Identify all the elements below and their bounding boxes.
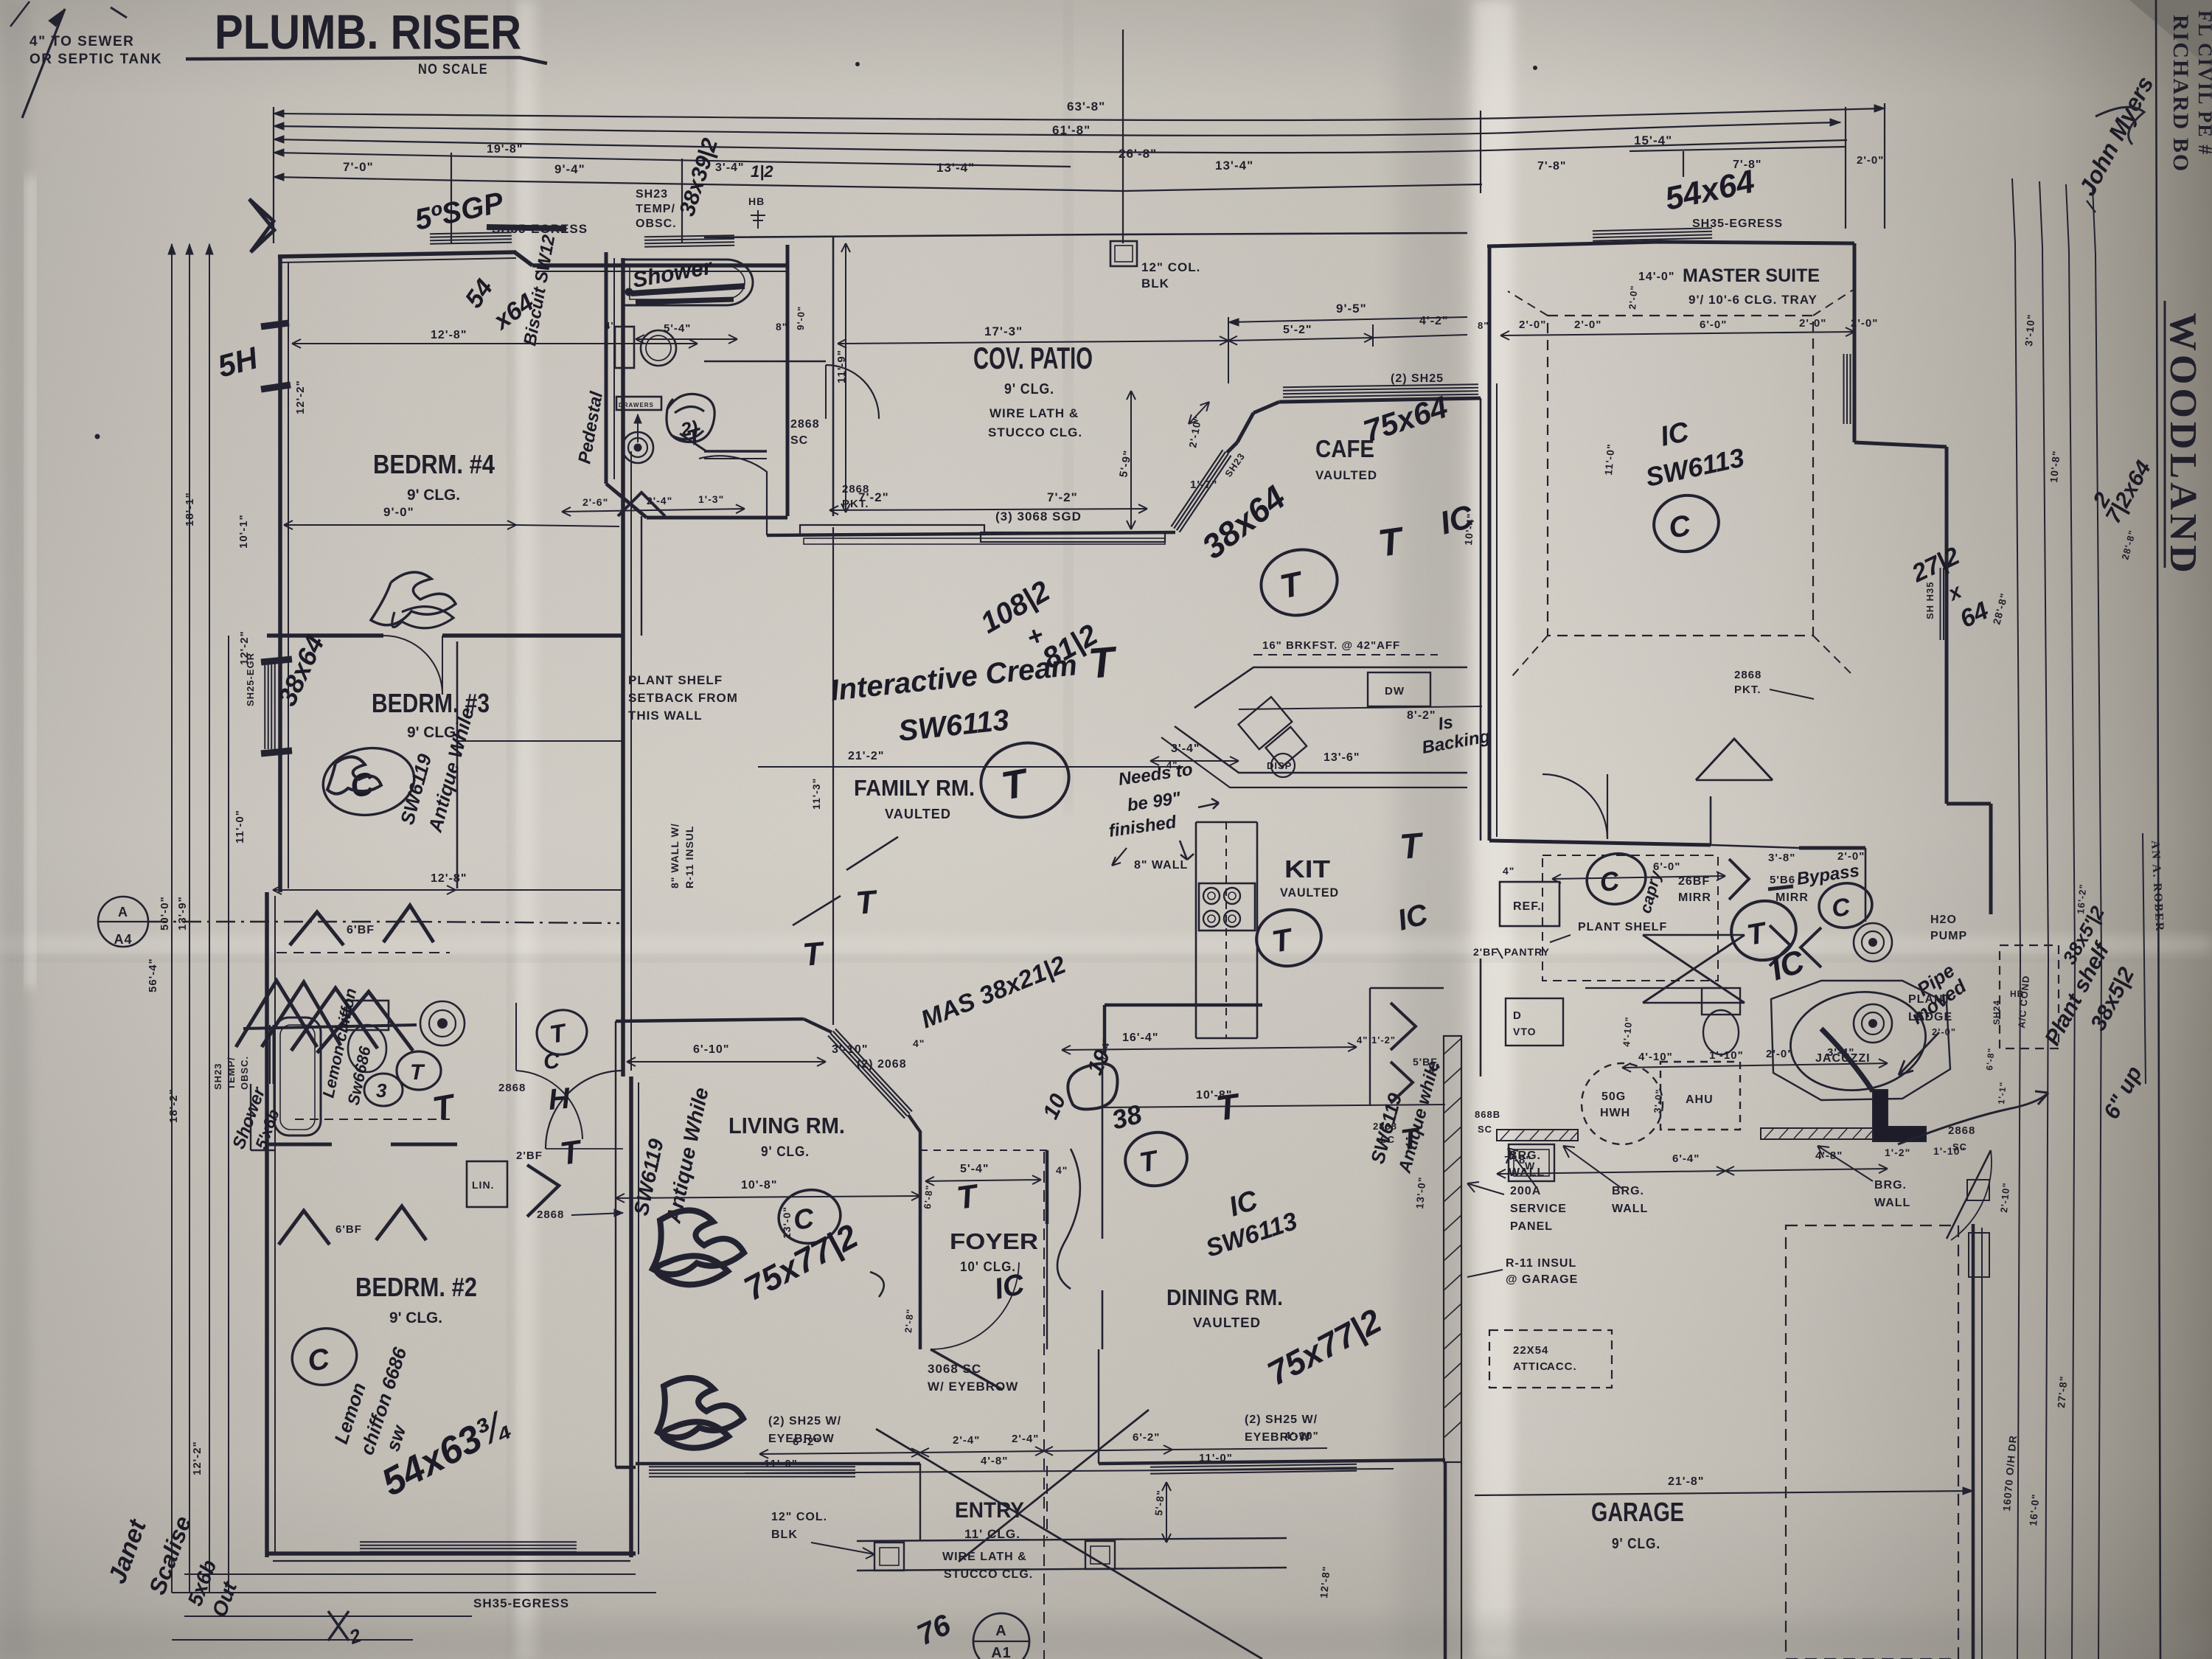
svg-text:1'-10": 1'-10" xyxy=(1933,1145,1966,1157)
svg-text:MASTER SUITE: MASTER SUITE xyxy=(1683,265,1820,286)
svg-text:FL CIVIL PE #: FL CIVIL PE # xyxy=(2194,10,2212,156)
svg-text:2868: 2868 xyxy=(537,1208,564,1221)
svg-text:50'-0": 50'-0" xyxy=(159,896,171,931)
svg-text:(2) SH25: (2) SH25 xyxy=(1391,372,1444,385)
svg-text:SC: SC xyxy=(1478,1124,1492,1135)
svg-text:OBSC.: OBSC. xyxy=(636,218,677,230)
svg-text:REF.: REF. xyxy=(1513,900,1542,913)
svg-text:VAULTED: VAULTED xyxy=(885,807,951,821)
svg-text:R-11 INSUL: R-11 INSUL xyxy=(684,826,695,888)
svg-text:2'-0": 2'-0" xyxy=(1837,850,1865,863)
svg-text:HWH: HWH xyxy=(1600,1107,1630,1119)
svg-text:6'-2": 6'-2" xyxy=(793,1436,820,1448)
svg-text:PUMP: PUMP xyxy=(1930,930,1967,942)
svg-text:1'-7": 1'-7" xyxy=(1190,479,1217,491)
svg-text:12" COL.: 12" COL. xyxy=(1141,260,1200,274)
svg-text:5'-4": 5'-4" xyxy=(664,322,691,335)
svg-text:ACC.: ACC. xyxy=(1547,1360,1577,1373)
svg-text:2'-4": 2'-4" xyxy=(1012,1433,1039,1445)
svg-text:4'-8": 4'-8" xyxy=(981,1455,1008,1467)
svg-text:PLANT SHELF: PLANT SHELF xyxy=(1578,921,1667,933)
svg-text:2868: 2868 xyxy=(1373,1121,1397,1132)
svg-text:(2) SH25 W/: (2) SH25 W/ xyxy=(768,1415,841,1427)
svg-text:OBSC.: OBSC. xyxy=(239,1056,250,1090)
svg-text:18'-1": 18'-1" xyxy=(184,492,196,526)
svg-text:TEMP/: TEMP/ xyxy=(226,1057,237,1090)
svg-text:A4: A4 xyxy=(114,932,132,947)
svg-text:A1: A1 xyxy=(991,1645,1012,1659)
svg-text:6'-0": 6'-0" xyxy=(1653,860,1680,873)
svg-text:SH24: SH24 xyxy=(1992,1000,2002,1025)
svg-text:12'-8": 12'-8" xyxy=(431,872,467,885)
svg-text:D: D xyxy=(1513,1009,1522,1022)
svg-text:AHU: AHU xyxy=(1686,1093,1714,1106)
svg-text:3'-4": 3'-4" xyxy=(715,161,745,174)
svg-text:THIS WALL: THIS WALL xyxy=(628,709,703,723)
svg-text:5'B6: 5'B6 xyxy=(1770,874,1795,886)
svg-text:19'-8": 19'-8" xyxy=(487,143,523,156)
svg-text:17'-3": 17'-3" xyxy=(984,324,1023,338)
svg-text:COV. PATIO: COV. PATIO xyxy=(973,341,1093,375)
svg-text:H2O: H2O xyxy=(1930,914,1957,926)
svg-text:9'-0": 9'-0" xyxy=(795,306,807,331)
svg-text:H: H xyxy=(547,1082,572,1116)
svg-text:6'-8": 6'-8" xyxy=(922,1184,935,1209)
svg-text:9'-0": 9'-0" xyxy=(383,505,414,519)
svg-text:DISP: DISP xyxy=(1267,760,1292,771)
svg-text:4": 4" xyxy=(913,1037,925,1049)
svg-text:2'-8": 2'-8" xyxy=(902,1308,916,1333)
svg-text:10'-1": 10'-1" xyxy=(237,514,250,549)
svg-text:2'-0": 2'-0" xyxy=(1932,1026,1956,1037)
svg-text:SC: SC xyxy=(790,434,808,447)
svg-text:4": 4" xyxy=(1503,865,1514,877)
svg-text:BLK: BLK xyxy=(1141,276,1169,291)
svg-text:50G: 50G xyxy=(1601,1091,1626,1103)
svg-text:SH H35: SH H35 xyxy=(1924,581,1935,619)
svg-text:1'-1": 1'-1" xyxy=(1996,1081,2008,1105)
svg-text:4": 4" xyxy=(1166,759,1178,771)
svg-text:2868: 2868 xyxy=(1948,1124,1975,1137)
svg-text:1'-2": 1'-2" xyxy=(1885,1147,1910,1158)
svg-text:MIRR: MIRR xyxy=(1775,891,1809,904)
svg-text:12'-2": 12'-2" xyxy=(191,1441,204,1475)
svg-text:VAULTED: VAULTED xyxy=(1193,1315,1261,1330)
svg-text:T: T xyxy=(410,1060,425,1085)
svg-text:11'-0": 11'-0" xyxy=(1199,1452,1233,1464)
svg-text:2'BF: 2'BF xyxy=(516,1150,543,1162)
svg-text:3068 SC: 3068 SC xyxy=(928,1362,981,1376)
svg-text:9' CLG.: 9' CLG. xyxy=(407,487,460,504)
svg-text:15'-4": 15'-4" xyxy=(1634,133,1672,147)
svg-text:FOYER: FOYER xyxy=(950,1228,1038,1254)
svg-text:@ GARAGE: @ GARAGE xyxy=(1506,1273,1578,1286)
svg-text:PKT.: PKT. xyxy=(1734,684,1761,696)
svg-text:9' CLG.: 9' CLG. xyxy=(761,1144,810,1160)
svg-text:13'-9": 13'-9" xyxy=(176,896,189,931)
svg-text:2868: 2868 xyxy=(1734,669,1761,681)
svg-text:PLUMB. RISER: PLUMB. RISER xyxy=(215,4,521,59)
svg-text:SC: SC xyxy=(1380,1134,1395,1145)
svg-text:BRG.: BRG. xyxy=(1612,1185,1644,1197)
svg-text:A: A xyxy=(118,905,128,919)
svg-text:WALL: WALL xyxy=(1874,1197,1910,1209)
svg-text:3'-10": 3'-10" xyxy=(832,1043,868,1056)
svg-text:7'-8": 7'-8" xyxy=(1504,1154,1531,1166)
svg-text:11'-0": 11'-0" xyxy=(234,810,246,844)
svg-text:9' CLG.: 9' CLG. xyxy=(389,1310,442,1326)
svg-text:WALL: WALL xyxy=(1612,1203,1648,1215)
svg-text:7'-2": 7'-2" xyxy=(1047,490,1078,504)
svg-text:PKT.: PKT. xyxy=(842,498,869,510)
svg-text:VAULTED: VAULTED xyxy=(1280,886,1339,900)
svg-text:13'-4": 13'-4" xyxy=(936,161,975,175)
svg-text:9'-5": 9'-5" xyxy=(1336,302,1367,316)
svg-text:KIT: KIT xyxy=(1284,855,1330,883)
svg-text:W/ EYEBROW: W/ EYEBROW xyxy=(928,1380,1018,1394)
svg-text:6'-0": 6'-0" xyxy=(1700,319,1727,331)
svg-text:3: 3 xyxy=(376,1079,387,1102)
svg-text:TEMP/: TEMP/ xyxy=(636,203,675,215)
svg-text:4'-10": 4'-10" xyxy=(1284,1430,1319,1442)
svg-text:7'-8": 7'-8" xyxy=(1537,160,1567,173)
svg-text:6'BF: 6'BF xyxy=(347,924,375,936)
svg-text:LEDGE: LEDGE xyxy=(1908,1011,1952,1023)
svg-text:SH35-EGRESS: SH35-EGRESS xyxy=(1692,218,1783,230)
svg-text:9' CLG.: 9' CLG. xyxy=(1004,381,1054,397)
svg-text:61'-8": 61'-8" xyxy=(1052,123,1091,137)
svg-text:NO SCALE: NO SCALE xyxy=(418,62,488,77)
svg-text:13'-4": 13'-4" xyxy=(1215,159,1253,173)
svg-text:LIVING RM.: LIVING RM. xyxy=(728,1113,845,1138)
svg-text:5'BF.: 5'BF. xyxy=(1413,1056,1440,1068)
svg-text:SH25-EGR: SH25-EGR xyxy=(245,653,256,706)
svg-text:SH23: SH23 xyxy=(212,1062,223,1090)
svg-text:10'-8": 10'-8" xyxy=(741,1179,777,1192)
svg-text:8" WALL W/: 8" WALL W/ xyxy=(669,823,681,888)
svg-text:SH35-EGRESS: SH35-EGRESS xyxy=(473,1596,569,1610)
svg-text:PANEL: PANEL xyxy=(1510,1220,1553,1233)
svg-text:VTO: VTO xyxy=(1513,1026,1537,1037)
svg-text:DINING RM.: DINING RM. xyxy=(1166,1284,1283,1310)
svg-text:1'-3": 1'-3" xyxy=(698,493,724,505)
svg-text:2'-0": 2'-0" xyxy=(1766,1048,1793,1060)
svg-text:5'-2": 5'-2" xyxy=(1283,324,1312,336)
svg-text:(2) SH25 W/: (2) SH25 W/ xyxy=(1245,1413,1318,1426)
svg-text:STUCCO CLG.: STUCCO CLG. xyxy=(988,425,1082,439)
svg-text:26'-8": 26'-8" xyxy=(1119,147,1157,161)
svg-text:21'-8": 21'-8" xyxy=(1668,1475,1704,1488)
svg-text:2868: 2868 xyxy=(790,418,820,431)
svg-text:4'-8": 4'-8" xyxy=(1815,1150,1843,1162)
svg-text:6'BF: 6'BF xyxy=(335,1223,362,1236)
svg-text:3'-4": 3'-4" xyxy=(1171,742,1200,755)
svg-text:11'-0": 11'-0" xyxy=(764,1458,798,1470)
svg-text:9' CLG.: 9' CLG. xyxy=(1612,1536,1660,1552)
svg-text:16'-4": 16'-4" xyxy=(1122,1032,1158,1044)
svg-text:RICHARD BO: RICHARD BO xyxy=(2168,15,2193,173)
svg-text:8" WALL: 8" WALL xyxy=(1134,859,1188,872)
svg-text:22X54: 22X54 xyxy=(1513,1344,1548,1357)
svg-text:5'-8": 5'-8" xyxy=(1152,1489,1166,1516)
svg-text:6'-4": 6'-4" xyxy=(1672,1152,1700,1165)
svg-text:2'-4": 2'-4" xyxy=(953,1434,980,1447)
svg-text:3'-8": 3'-8" xyxy=(1768,852,1795,864)
svg-text:21'-2": 21'-2" xyxy=(848,750,884,762)
svg-text:2'-0": 2'-0" xyxy=(1857,154,1884,167)
svg-text:WIRE LATH &: WIRE LATH & xyxy=(990,406,1079,420)
svg-text:868B: 868B xyxy=(1475,1109,1500,1120)
svg-text:4" 1'-2": 4" 1'-2" xyxy=(1357,1034,1396,1046)
svg-text:7'-4": 7'-4" xyxy=(1099,1037,1112,1062)
svg-text:63'-8": 63'-8" xyxy=(1067,100,1105,114)
svg-text:(2) 2068: (2) 2068 xyxy=(857,1058,907,1071)
svg-text:CAFE: CAFE xyxy=(1315,435,1374,462)
svg-text:6'-8": 6'-8" xyxy=(1984,1047,1997,1071)
svg-text:2868: 2868 xyxy=(842,483,869,495)
svg-text:18'-2": 18'-2" xyxy=(167,1088,180,1123)
svg-text:WIRE LATH &: WIRE LATH & xyxy=(942,1551,1027,1563)
svg-text:7'-0": 7'-0" xyxy=(343,160,374,174)
svg-text:2'-0": 2'-0" xyxy=(1574,319,1601,331)
svg-text:BEDRM. #2: BEDRM. #2 xyxy=(355,1272,477,1302)
svg-text:SH23: SH23 xyxy=(636,188,668,201)
svg-text:4" TO SEWER: 4" TO SEWER xyxy=(29,34,134,49)
svg-text:HB: HB xyxy=(748,195,765,207)
svg-text:16" BRKFST. @ 42"AFF: 16" BRKFST. @ 42"AFF xyxy=(1262,639,1400,652)
svg-text:12'-2": 12'-2" xyxy=(294,380,307,414)
svg-text:MIRR: MIRR xyxy=(1678,891,1711,904)
svg-text:GARAGE: GARAGE xyxy=(1591,1497,1684,1527)
svg-text:LIN.: LIN. xyxy=(472,1179,494,1191)
svg-text:10'-8": 10'-8" xyxy=(1196,1089,1232,1102)
svg-text:8": 8" xyxy=(1478,320,1489,331)
svg-text:PLANT: PLANT xyxy=(1908,993,1951,1006)
svg-text:12" COL.: 12" COL. xyxy=(771,1511,827,1523)
svg-text:HB: HB xyxy=(2010,989,2024,999)
svg-text:SERVICE: SERVICE xyxy=(1510,1203,1567,1215)
svg-text:8": 8" xyxy=(776,321,787,333)
svg-text:6'-10": 6'-10" xyxy=(693,1043,729,1056)
svg-text:PLANT SHELF: PLANT SHELF xyxy=(628,673,723,687)
svg-text:4": 4" xyxy=(1056,1164,1068,1176)
svg-text:4'-2": 4'-2" xyxy=(1419,315,1449,327)
svg-text:BEDRM. #4: BEDRM. #4 xyxy=(373,449,495,479)
svg-text:9'-4": 9'-4" xyxy=(554,162,585,176)
svg-text:ATTIC: ATTIC xyxy=(1513,1360,1548,1373)
svg-text:PANTRY: PANTRY xyxy=(1504,946,1550,958)
svg-text:2'-6": 2'-6" xyxy=(582,496,608,508)
svg-text:DW: DW xyxy=(1385,685,1405,698)
svg-text:(3) 3068 SGD: (3) 3068 SGD xyxy=(995,509,1082,524)
svg-text:3'-0": 3'-0" xyxy=(1652,1088,1665,1113)
svg-text:R-11 INSUL: R-11 INSUL xyxy=(1506,1257,1576,1270)
svg-text:2'BF: 2'BF xyxy=(1473,946,1498,958)
svg-text:1|2: 1|2 xyxy=(751,162,773,181)
svg-text:SETBACK FROM: SETBACK FROM xyxy=(628,691,738,705)
svg-text:OR SEPTIC TANK: OR SEPTIC TANK xyxy=(29,52,162,67)
svg-text:5'-4": 5'-4" xyxy=(960,1163,990,1175)
svg-text:8'-2": 8'-2" xyxy=(1407,709,1436,722)
svg-text:4": 4" xyxy=(605,320,616,331)
svg-text:1'-10": 1'-10" xyxy=(1709,1049,1744,1062)
svg-text:14'-0": 14'-0" xyxy=(1638,271,1674,283)
svg-text:13'-6": 13'-6" xyxy=(1324,751,1360,764)
svg-text:2'-0": 2'-0" xyxy=(1519,319,1546,331)
svg-text:BLK: BLK xyxy=(771,1528,798,1541)
svg-text:WOODLAND: WOODLAND xyxy=(2162,313,2204,577)
svg-text:6'-2": 6'-2" xyxy=(1133,1431,1160,1444)
svg-text:VAULTED: VAULTED xyxy=(1315,468,1377,482)
svg-text:FAMILY RM.: FAMILY RM. xyxy=(854,775,975,801)
svg-text:9'/ 10'-6 CLG. TRAY: 9'/ 10'-6 CLG. TRAY xyxy=(1688,293,1818,307)
svg-text:2'-0": 2'-0" xyxy=(1627,285,1640,310)
svg-text:11'-3": 11'-3" xyxy=(810,778,822,810)
svg-text:STUCCO CLG.: STUCCO CLG. xyxy=(944,1568,1033,1581)
svg-text:A: A xyxy=(995,1623,1006,1639)
svg-text:BRG.: BRG. xyxy=(1874,1179,1907,1192)
svg-text:56'-4": 56'-4" xyxy=(147,958,159,992)
svg-text:12'-8": 12'-8" xyxy=(431,329,467,341)
svg-text:2868: 2868 xyxy=(498,1082,526,1094)
